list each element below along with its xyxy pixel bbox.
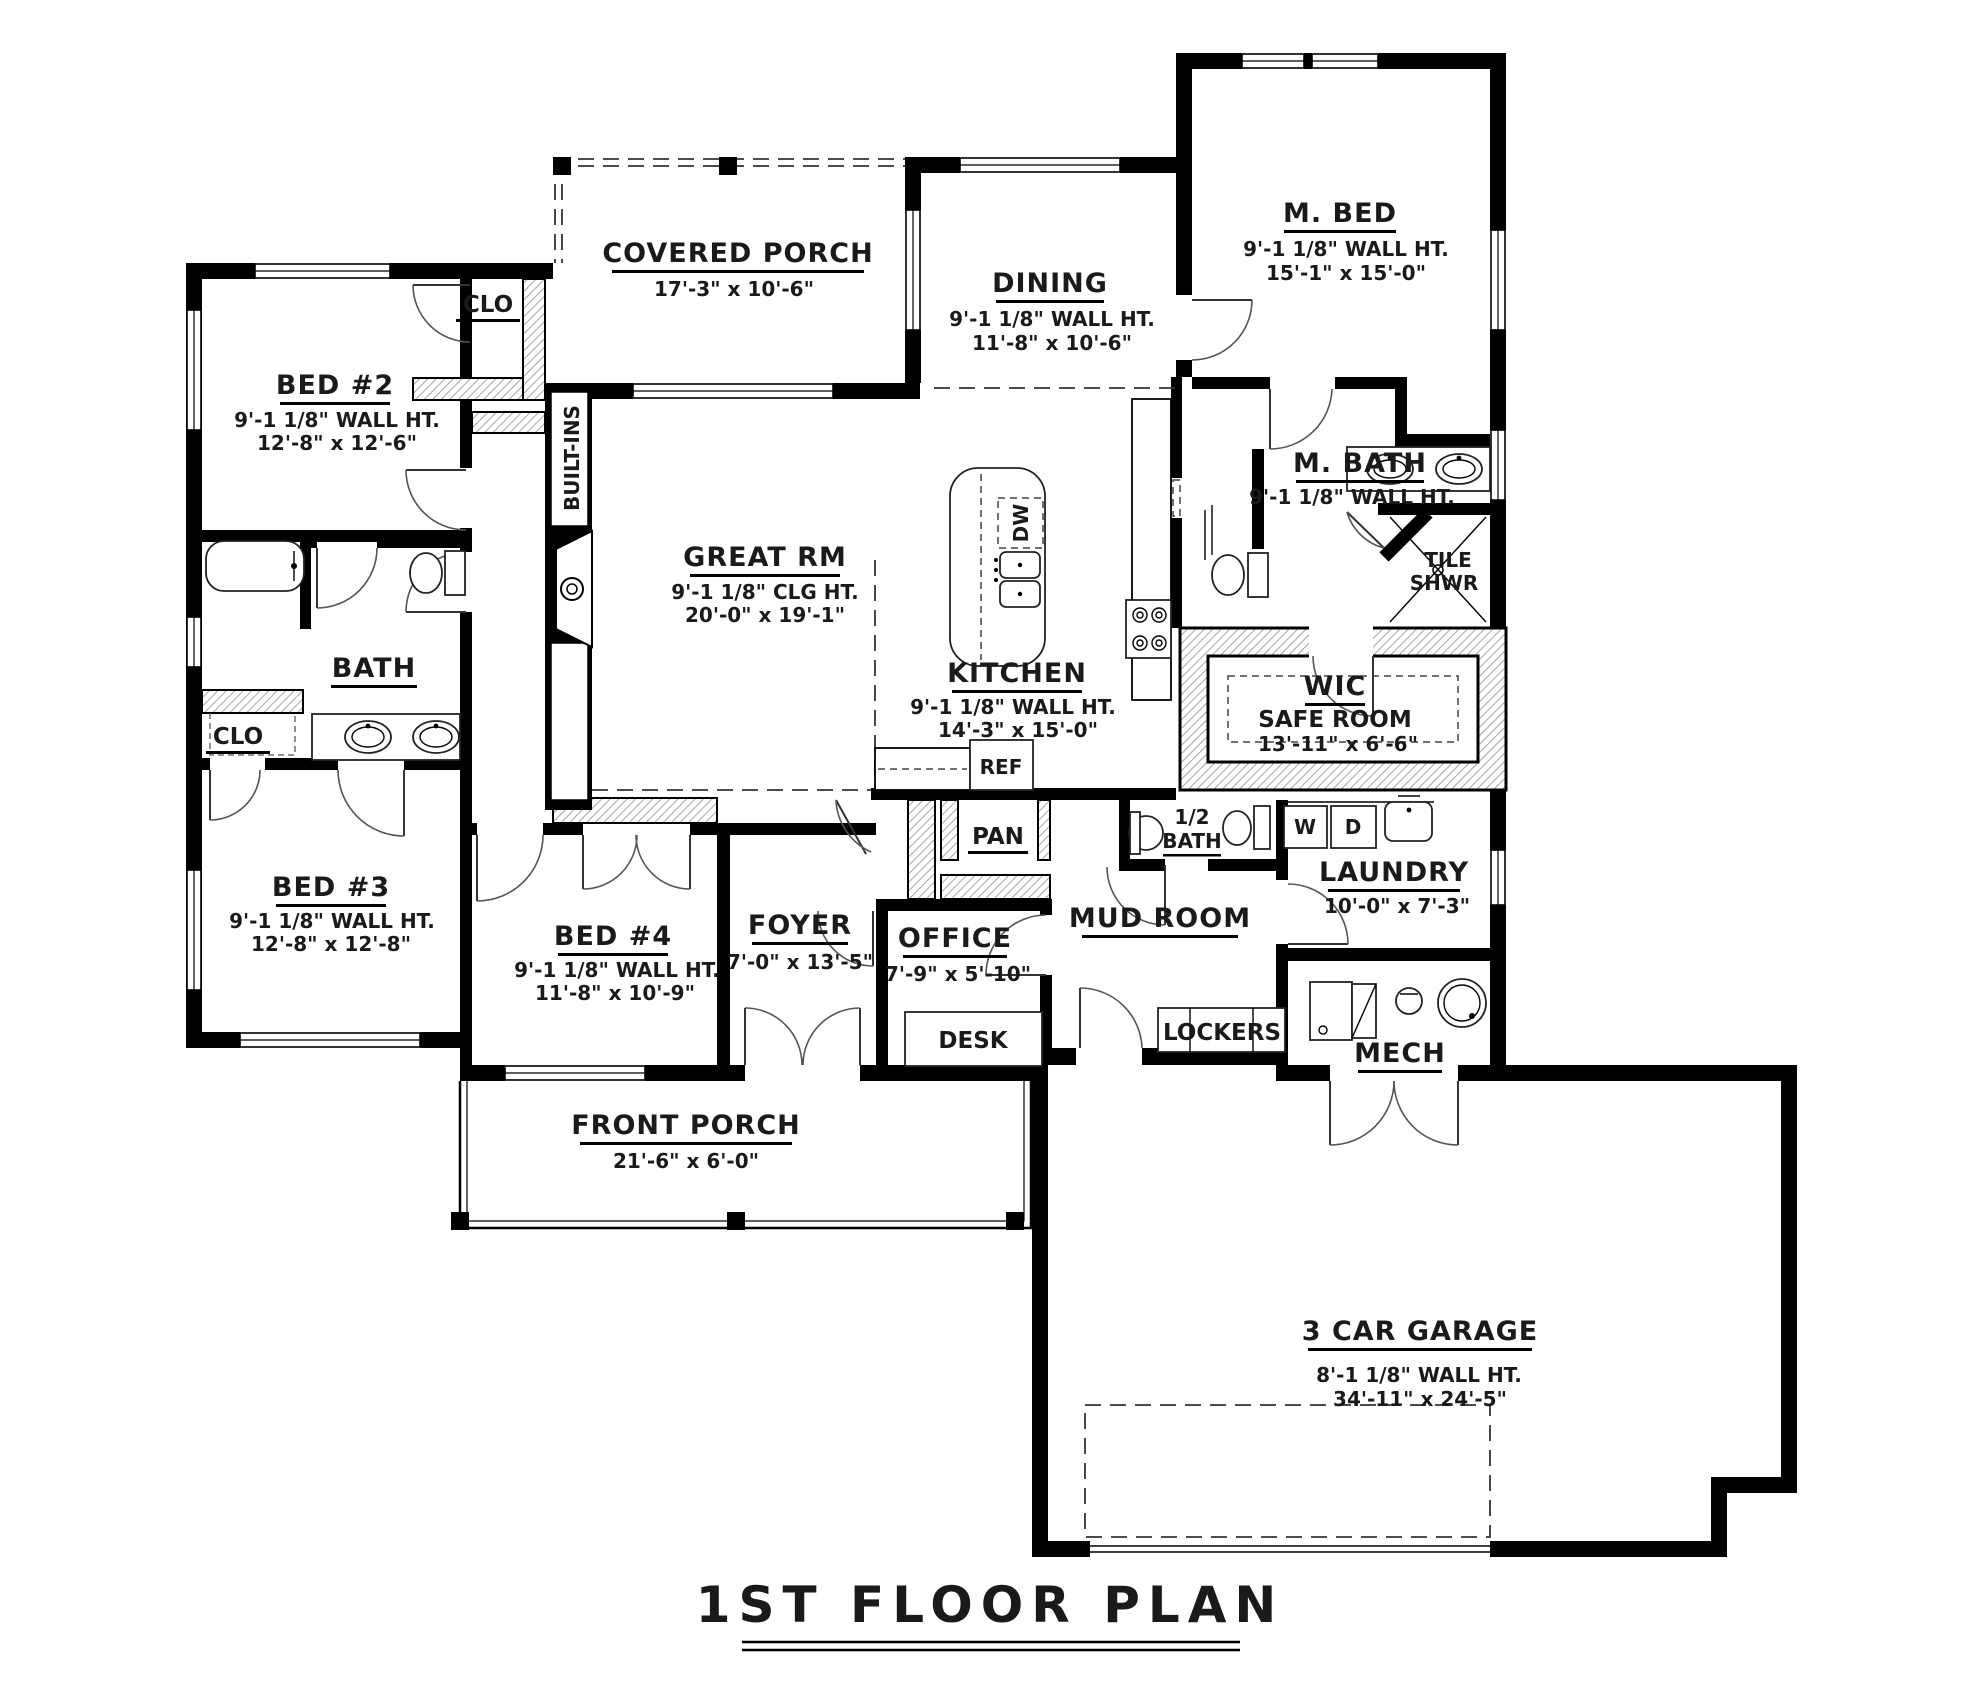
room-label-garage: 3 CAR GARAGE	[1302, 1316, 1538, 1347]
room-label-half-bath-2: BATH	[1162, 829, 1222, 853]
room-label-tile: TILE	[1424, 548, 1472, 572]
room-dims-bed4: 11'-8" x 10'-9"	[535, 981, 695, 1005]
bathtub	[206, 541, 304, 591]
room-wallht-bed2: 9'-1 1/8" WALL HT.	[234, 408, 440, 432]
room-label-bed2: BED #2	[276, 370, 394, 401]
room-label-bed3: BED #3	[272, 872, 390, 903]
label-washer: W	[1294, 815, 1316, 839]
room-label-office: OFFICE	[898, 923, 1012, 954]
room-label-laundry: LAUNDRY	[1319, 857, 1469, 888]
title-text: 1ST FLOOR PLAN	[696, 1576, 1285, 1634]
kitchen-island	[950, 468, 1045, 666]
room-wallht-garage: 8'-1 1/8" WALL HT.	[1316, 1363, 1522, 1387]
room-dims-office: 7'-9" x 5'-10"	[885, 962, 1031, 986]
room-label-bath: BATH	[332, 653, 416, 684]
kitchen-counter-range	[1126, 399, 1171, 700]
floor-plan: COVERED PORCH 17'-3" x 10'-6" DINING 9'-…	[0, 0, 1969, 1695]
room-label-m-bed: M. BED	[1283, 198, 1397, 229]
room-dims-kitchen: 14'-3" x 15'-0"	[938, 718, 1098, 742]
label-lockers: LOCKERS	[1163, 1020, 1281, 1046]
room-label-mud-room: MUD ROOM	[1069, 903, 1251, 934]
room-wallht-bed3: 9'-1 1/8" WALL HT.	[229, 909, 435, 933]
room-label-m-bath: M. BATH	[1293, 448, 1427, 479]
room-label-pan: PAN	[972, 824, 1024, 850]
room-label-mech: MECH	[1354, 1038, 1446, 1069]
room-dims-laundry: 10'-0" x 7'-3"	[1324, 894, 1470, 918]
room-wallht-m-bed: 9'-1 1/8" WALL HT.	[1243, 237, 1449, 261]
toilet-bath	[410, 551, 465, 595]
room-wallht-kitchen: 9'-1 1/8" WALL HT.	[910, 695, 1116, 719]
room-label-dining: DINING	[992, 268, 1108, 299]
label-dryer: D	[1345, 815, 1362, 839]
room-dims-foyer: 7'-0" x 13'-5"	[727, 950, 873, 974]
mech-equipment	[1310, 979, 1486, 1040]
water-heater	[1438, 979, 1486, 1027]
room-clght-great-rm: 9'-1 1/8" CLG HT.	[671, 580, 858, 604]
room-dims-front-porch: 21'-6" x 6'-0"	[613, 1149, 759, 1173]
room-wallht-m-bath: 9'-1 1/8" WALL HT.	[1249, 485, 1455, 509]
label-desk: DESK	[938, 1028, 1008, 1054]
room-label-wic: WIC	[1304, 671, 1367, 702]
room-wallht-bed4: 9'-1 1/8" WALL HT.	[514, 958, 720, 982]
floor-drain	[1396, 988, 1422, 1014]
room-label-covered-porch: COVERED PORCH	[602, 238, 873, 269]
room-label-foyer: FOYER	[748, 910, 852, 941]
room-label-shwr: SHWR	[1410, 571, 1479, 595]
room-label-half-bath-1: 1/2	[1174, 805, 1209, 829]
plan-title: 1ST FLOOR PLAN	[696, 1576, 1285, 1650]
room-wallht-dining: 9'-1 1/8" WALL HT.	[949, 307, 1155, 331]
room-dims-great-rm: 20'-0" x 19'-1"	[685, 603, 845, 627]
room-label-bed4: BED #4	[554, 921, 672, 952]
room-label-clo-top: CLO	[463, 292, 513, 318]
room-dims-bed3: 12'-8" x 12'-8"	[251, 932, 411, 956]
room-label-great-rm: GREAT RM	[683, 542, 847, 573]
room-label-safe-room: SAFE ROOM	[1258, 707, 1412, 733]
room-dims-safe-room: 13'-11" x 6'-6"	[1258, 732, 1418, 756]
room-dims-dining: 11'-8" x 10'-6"	[972, 331, 1132, 355]
room-label-kitchen: KITCHEN	[947, 658, 1087, 689]
vanity-bath	[312, 714, 460, 760]
room-label-front-porch: FRONT PORCH	[571, 1110, 801, 1141]
room-label-clo-left: CLO	[213, 724, 263, 750]
room-dims-bed2: 12'-8" x 12'-6"	[257, 431, 417, 455]
label-dw: DW	[1009, 504, 1033, 543]
room-dims-covered-porch: 17'-3" x 10'-6"	[654, 277, 814, 301]
label-ref: REF	[980, 755, 1023, 779]
room-dims-garage: 34'-11" x 24'-5"	[1333, 1387, 1507, 1411]
room-dims-m-bed: 15'-1" x 15'-0"	[1266, 261, 1426, 285]
room-label-built-ins: BUILT-INS	[560, 405, 584, 511]
